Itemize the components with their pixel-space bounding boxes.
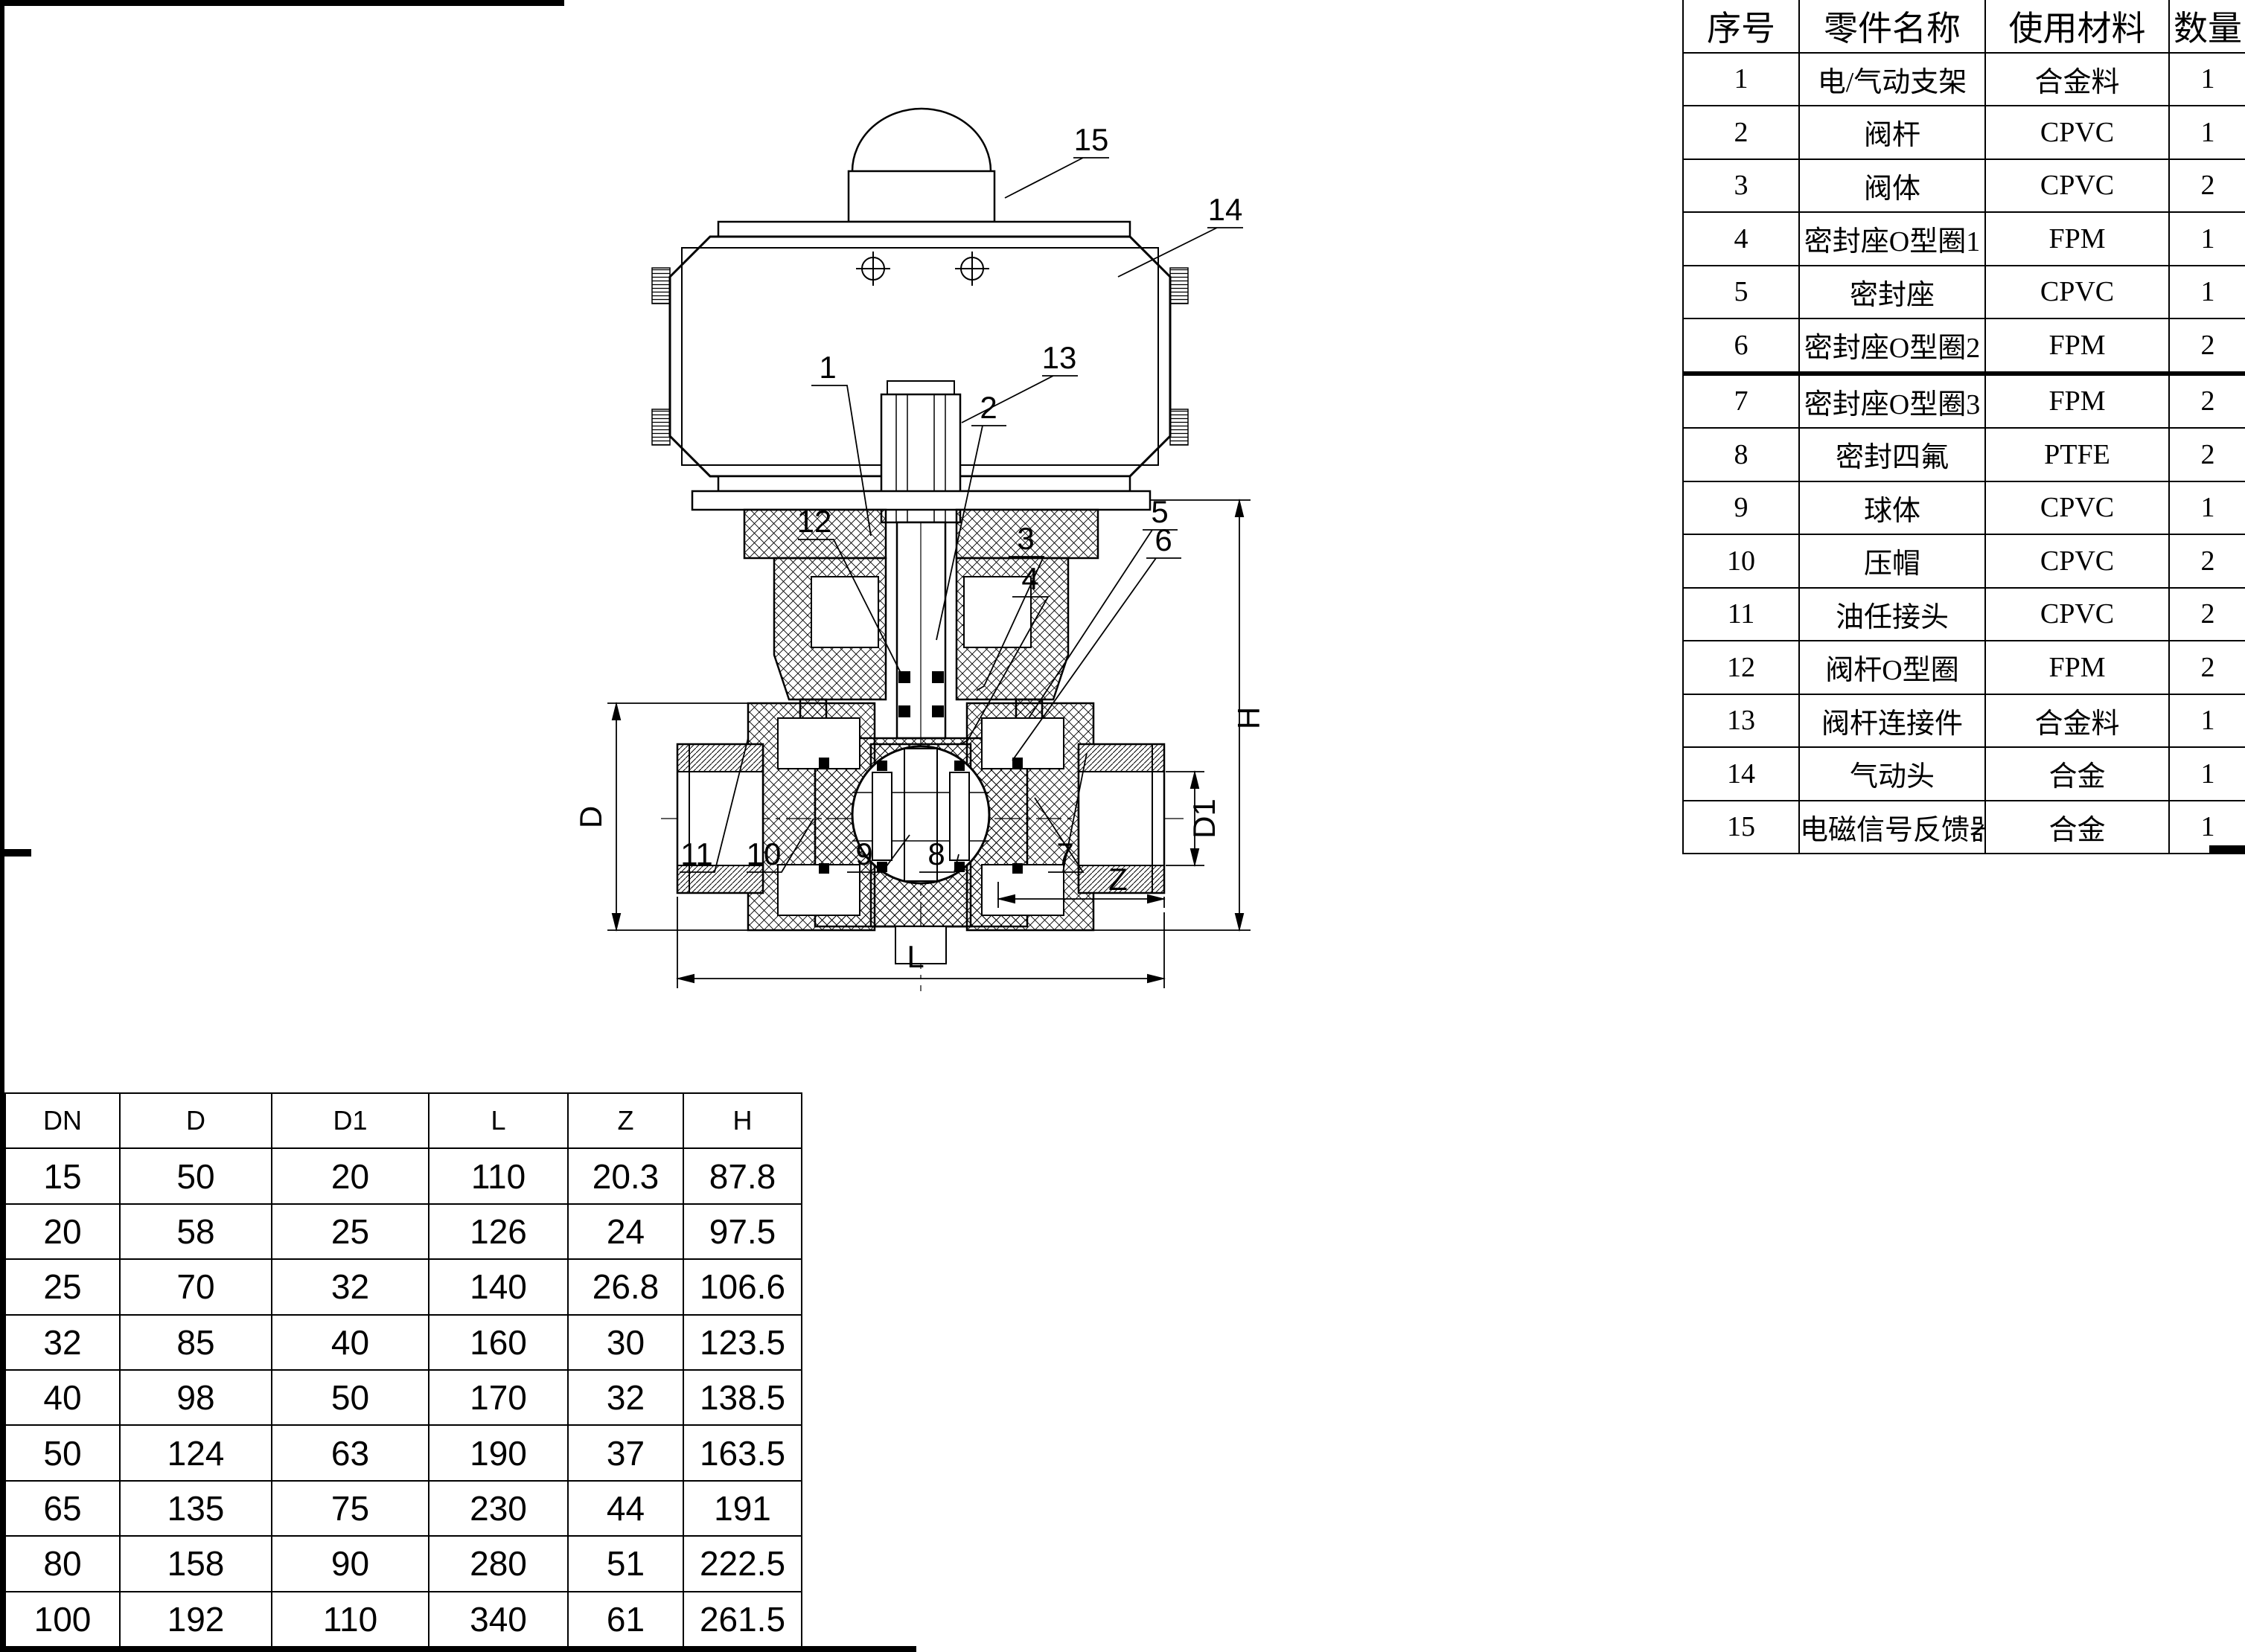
table-cell: 110 <box>272 1592 429 1649</box>
parts-table-header-row: 序号 零件名称 使用材料 数量 <box>1683 0 2245 53</box>
actuator-spring-pad <box>652 409 670 445</box>
table-cell: 2 <box>2169 428 2245 481</box>
table-cell: 合金料 <box>1985 53 2169 106</box>
table-row: 3阀体CPVC2 <box>1683 159 2245 213</box>
table-cell: 51 <box>568 1536 683 1591</box>
callout-9: 9 <box>855 836 872 871</box>
table-cell: 138.5 <box>683 1370 802 1425</box>
callout-15: 15 <box>1074 122 1109 157</box>
table-row: 7密封座O型圈3FPM2 <box>1683 374 2245 429</box>
table-cell: 2 <box>2169 534 2245 588</box>
table-cell: 6 <box>1683 318 1799 374</box>
table-row: 25703214026.8106.6 <box>3 1259 802 1314</box>
table-cell: 5 <box>1683 266 1799 319</box>
table-row: 1电/气动支架合金料1 <box>1683 53 2245 106</box>
table-cell: 70 <box>120 1259 272 1314</box>
table-cell: 1 <box>2169 53 2245 106</box>
actuator-spring-pad <box>1170 409 1188 445</box>
table-row: 15电磁信号反馈器合金1 <box>1683 801 2245 854</box>
table-cell: 2 <box>1683 106 1799 159</box>
dim-header-l: L <box>429 1093 568 1148</box>
stem-o-ring <box>932 671 944 683</box>
table-row: 40985017032138.5 <box>3 1370 802 1425</box>
table-cell: 2 <box>2169 641 2245 694</box>
table-cell: 163.5 <box>683 1425 802 1480</box>
solenoid-feedback-dome <box>849 109 994 222</box>
table-row: 11油任接头CPVC2 <box>1683 588 2245 641</box>
table-cell: 44 <box>568 1481 683 1536</box>
table-cell: 32 <box>272 1259 429 1314</box>
table-row: 12阀杆O型圈FPM2 <box>1683 641 2245 694</box>
table-cell: 50 <box>120 1148 272 1203</box>
table-cell: 85 <box>120 1315 272 1370</box>
table-cell: 63 <box>272 1425 429 1480</box>
table-cell: 191 <box>683 1481 802 1536</box>
callout-1: 1 <box>819 350 836 385</box>
table-cell: 32 <box>3 1315 120 1370</box>
table-row: 9球体CPVC1 <box>1683 481 2245 535</box>
sheet-tick-left <box>0 849 31 857</box>
table-cell: 密封座O型圈3 <box>1799 374 1985 429</box>
table-cell: 2 <box>2169 374 2245 429</box>
table-cell: 电磁信号反馈器 <box>1799 801 1985 854</box>
table-cell: 油任接头 <box>1799 588 1985 641</box>
table-cell: 123.5 <box>683 1315 802 1370</box>
dim-label-H: H <box>1231 707 1266 729</box>
table-cell: 50 <box>272 1370 429 1425</box>
callout-3: 3 <box>1017 521 1034 556</box>
table-cell: 密封座O型圈1 <box>1799 212 1985 266</box>
stem-o-ring <box>898 705 910 717</box>
table-cell: 14 <box>1683 747 1799 801</box>
table-cell: PTFE <box>1985 428 2169 481</box>
table-cell: 1 <box>2169 266 2245 319</box>
table-cell: 阀体 <box>1799 159 1985 213</box>
table-cell: 12 <box>1683 641 1799 694</box>
table-cell: 26.8 <box>568 1259 683 1314</box>
dim-label-L: L <box>907 939 924 974</box>
callout-7: 7 <box>1056 836 1073 871</box>
table-row: 10019211034061261.5 <box>3 1592 802 1649</box>
parts-header-name: 零件名称 <box>1799 0 1985 53</box>
table-cell: 50 <box>3 1425 120 1480</box>
table-cell: FPM <box>1985 641 2169 694</box>
table-cell: 135 <box>120 1481 272 1536</box>
table-cell: 40 <box>272 1315 429 1370</box>
table-cell: 1 <box>2169 212 2245 266</box>
dim-header-d: D <box>120 1093 272 1148</box>
table-cell: 2 <box>2169 588 2245 641</box>
table-row: 13阀杆连接件合金料1 <box>1683 694 2245 748</box>
table-cell: 电/气动支架 <box>1799 53 1985 106</box>
table-row: 4密封座O型圈1FPM1 <box>1683 212 2245 266</box>
table-cell: 9 <box>1683 481 1799 535</box>
table-cell: 10 <box>1683 534 1799 588</box>
callout-4: 4 <box>1021 561 1038 596</box>
table-cell: 2 <box>2169 159 2245 213</box>
table-cell: 340 <box>429 1592 568 1649</box>
callout-10: 10 <box>747 836 782 871</box>
sheet-border-top <box>0 0 564 6</box>
table-cell: CPVC <box>1985 588 2169 641</box>
table-row: 8密封四氟PTFE2 <box>1683 428 2245 481</box>
table-cell: 15 <box>3 1148 120 1203</box>
table-cell: 75 <box>272 1481 429 1536</box>
table-cell: 密封四氟 <box>1799 428 1985 481</box>
table-cell: CPVC <box>1985 266 2169 319</box>
table-row: 2058251262497.5 <box>3 1204 802 1259</box>
table-cell: 20.3 <box>568 1148 683 1203</box>
dim-label-Z: Z <box>1108 862 1128 897</box>
table-cell: 106.6 <box>683 1259 802 1314</box>
table-cell: CPVC <box>1985 106 2169 159</box>
table-cell: 阀杆连接件 <box>1799 694 1985 748</box>
drawing-sheet: 序号 零件名称 使用材料 数量 1电/气动支架合金料12阀杆CPVC13阀体CP… <box>0 0 2245 1652</box>
table-cell: 80 <box>3 1536 120 1591</box>
table-cell: 1 <box>2169 481 2245 535</box>
table-row: 32854016030123.5 <box>3 1315 802 1370</box>
table-cell: 7 <box>1683 374 1799 429</box>
callout-11: 11 <box>680 836 713 871</box>
table-cell: 158 <box>120 1536 272 1591</box>
table-cell: 30 <box>568 1315 683 1370</box>
table-cell: 1 <box>2169 106 2245 159</box>
valve-section-drawing: D H D1 Z L <box>566 45 1355 1027</box>
table-cell: 球体 <box>1799 481 1985 535</box>
table-cell: 37 <box>568 1425 683 1480</box>
dim-header-d1: D1 <box>272 1093 429 1148</box>
table-cell: 40 <box>3 1370 120 1425</box>
table-cell: 190 <box>429 1425 568 1480</box>
table-cell: 阀杆O型圈 <box>1799 641 1985 694</box>
table-cell: 97.5 <box>683 1204 802 1259</box>
table-cell: 1 <box>2169 694 2245 748</box>
table-cell: 65 <box>3 1481 120 1536</box>
stem-o-ring <box>932 705 944 717</box>
table-cell: 230 <box>429 1481 568 1536</box>
table-cell: 87.8 <box>683 1148 802 1203</box>
table-cell: 100 <box>3 1592 120 1649</box>
table-cell: 126 <box>429 1204 568 1259</box>
callout-12: 12 <box>797 504 832 539</box>
table-cell: 气动头 <box>1799 747 1985 801</box>
table-row: 10压帽CPVC2 <box>1683 534 2245 588</box>
table-cell: 222.5 <box>683 1536 802 1591</box>
table-cell: 25 <box>272 1204 429 1259</box>
table-cell: 140 <box>429 1259 568 1314</box>
leader-15 <box>1005 158 1109 198</box>
table-cell: FPM <box>1985 318 2169 374</box>
parts-header-no: 序号 <box>1683 0 1799 53</box>
table-cell: 110 <box>429 1148 568 1203</box>
table-cell: CPVC <box>1985 159 2169 213</box>
table-cell: 24 <box>568 1204 683 1259</box>
table-cell: 3 <box>1683 159 1799 213</box>
table-row: 15502011020.387.8 <box>3 1148 802 1203</box>
table-cell: 170 <box>429 1370 568 1425</box>
table-cell: 阀杆 <box>1799 106 1985 159</box>
table-row: 5密封座CPVC1 <box>1683 266 2245 319</box>
table-cell: 1 <box>1683 53 1799 106</box>
parts-table: 序号 零件名称 使用材料 数量 1电/气动支架合金料12阀杆CPVC13阀体CP… <box>1682 0 2245 854</box>
callout-6: 6 <box>1155 522 1172 557</box>
table-cell: 61 <box>568 1592 683 1649</box>
callout-2: 2 <box>980 390 997 425</box>
table-cell: 2 <box>2169 318 2245 374</box>
callout-13: 13 <box>1042 340 1077 375</box>
table-row: 801589028051222.5 <box>3 1536 802 1591</box>
callout-14: 14 <box>1208 192 1243 227</box>
dim-label-D1: D1 <box>1187 798 1222 839</box>
table-cell: CPVC <box>1985 481 2169 535</box>
table-cell: 98 <box>120 1370 272 1425</box>
table-cell: 8 <box>1683 428 1799 481</box>
actuator-spring-pad <box>652 268 670 304</box>
table-cell: CPVC <box>1985 534 2169 588</box>
table-cell: 合金料 <box>1985 694 2169 748</box>
table-cell: 124 <box>120 1425 272 1480</box>
dimension-table-header-row: DN D D1 L Z H <box>3 1093 802 1148</box>
table-row: 501246319037163.5 <box>3 1425 802 1480</box>
table-cell: 90 <box>272 1536 429 1591</box>
table-cell: 160 <box>429 1315 568 1370</box>
table-cell: 20 <box>272 1148 429 1203</box>
dim-label-D: D <box>573 806 608 828</box>
table-cell: 192 <box>120 1592 272 1649</box>
dim-header-dn: DN <box>3 1093 120 1148</box>
table-cell: 合金 <box>1985 801 2169 854</box>
table-row: 2阀杆CPVC1 <box>1683 106 2245 159</box>
table-cell: 15 <box>1683 801 1799 854</box>
table-cell: 密封座 <box>1799 266 1985 319</box>
parts-header-qty: 数量 <box>2169 0 2245 53</box>
table-cell: 25 <box>3 1259 120 1314</box>
table-cell: 压帽 <box>1799 534 1985 588</box>
table-cell: 11 <box>1683 588 1799 641</box>
table-cell: 261.5 <box>683 1592 802 1649</box>
dim-header-h: H <box>683 1093 802 1148</box>
dimension-table: DN D D1 L Z H 15502011020.387.8205825126… <box>0 1092 802 1652</box>
table-cell: 58 <box>120 1204 272 1259</box>
table-cell: 4 <box>1683 212 1799 266</box>
actuator-spring-pad <box>1170 268 1188 304</box>
dim-header-z: Z <box>568 1093 683 1148</box>
table-cell: 1 <box>2169 801 2245 854</box>
table-cell: 280 <box>429 1536 568 1591</box>
table-cell: FPM <box>1985 212 2169 266</box>
table-row: 651357523044191 <box>3 1481 802 1536</box>
table-cell: 32 <box>568 1370 683 1425</box>
table-row: 6密封座O型圈2FPM2 <box>1683 318 2245 374</box>
table-cell: 合金 <box>1985 747 2169 801</box>
callout-8: 8 <box>927 836 945 871</box>
table-cell: 13 <box>1683 694 1799 748</box>
table-cell: FPM <box>1985 374 2169 429</box>
parts-header-material: 使用材料 <box>1985 0 2169 53</box>
table-cell: 密封座O型圈2 <box>1799 318 1985 374</box>
table-cell: 1 <box>2169 747 2245 801</box>
table-cell: 20 <box>3 1204 120 1259</box>
table-row: 14气动头合金1 <box>1683 747 2245 801</box>
